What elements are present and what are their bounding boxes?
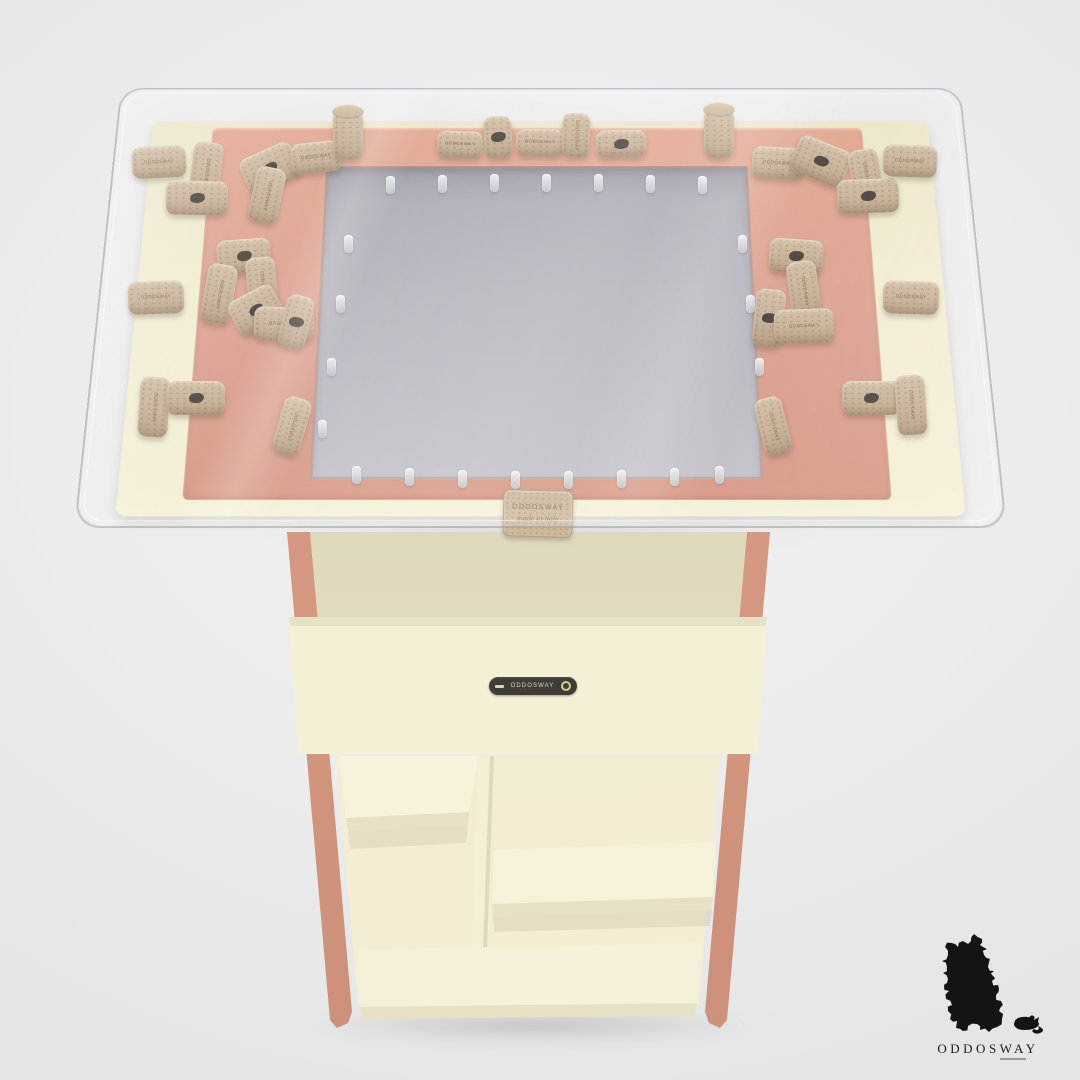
cork-metal-cap	[332, 104, 364, 119]
champagne-cork-standing	[704, 108, 734, 158]
cork-metal-cap	[703, 102, 735, 117]
mouse-icon	[1014, 1015, 1043, 1033]
wine-cork	[166, 180, 229, 215]
gray-felt-panel	[310, 166, 764, 479]
glass-peg	[670, 468, 679, 486]
wine-cork: ODDOSWAY	[131, 145, 187, 180]
wine-cork	[167, 381, 225, 415]
sardinia-stamp-mark	[813, 154, 830, 167]
logo-brand-text: ODDOSWAY	[908, 1041, 1068, 1057]
cork-print-text: ODDOSWAY	[800, 276, 809, 307]
front-cork-tag: ODDOSWAY made in italy	[502, 489, 573, 538]
cork-print-text: ODDOSWAY	[144, 159, 175, 165]
brand-logo: ODDOSWAY	[908, 930, 1068, 1070]
logo-fineprint	[1000, 1058, 1026, 1060]
sardinia-stamp-mark	[490, 131, 507, 144]
sardinia-puzzle-silhouette-icon	[908, 930, 1068, 1040]
wine-cork	[842, 381, 900, 415]
drawer-brand-badge: ODDOSWAY · · ·	[489, 677, 577, 695]
wine-cork	[596, 130, 646, 158]
wine-cork	[483, 115, 513, 158]
glass-peg	[698, 176, 707, 194]
cork-print-text: ODDOSWAY	[908, 390, 915, 421]
tag-made-in-italy-text: made in italy	[517, 513, 559, 523]
wine-cork: ODDOSWAY	[516, 129, 564, 157]
wine-cork: ODDOSWAY	[894, 374, 928, 436]
wine-cork: ODDOSWAY	[561, 113, 591, 158]
glass-peg	[738, 235, 747, 253]
glass-peg	[405, 468, 414, 486]
cork-print-text: ODDOSWAY	[151, 392, 158, 423]
cork-print-text: ODDOSWAY	[767, 411, 779, 442]
cork-print-text: ODDOSWAY	[525, 140, 556, 145]
glass-peg	[344, 235, 353, 253]
wine-cork: ODDOSWAY	[437, 130, 484, 159]
sardinia-stamp-mark	[860, 190, 877, 202]
cork-print-text: ODDOSWAY	[895, 158, 926, 164]
sardinia-stamp-mark	[788, 250, 804, 261]
glass-peg	[438, 175, 447, 193]
wine-cork: ODDOSWAY	[882, 144, 937, 178]
sardinia-stamp-mark	[863, 392, 879, 404]
glass-peg	[336, 295, 345, 313]
badge-fineprint: · · ·	[489, 688, 563, 692]
glass-peg	[511, 471, 520, 489]
glass-peg	[542, 174, 551, 192]
wine-cork: ODDOSWAY	[882, 280, 939, 315]
sardinia-stamp-mark	[613, 137, 629, 149]
cork-print-text: ODDOSWAY	[286, 411, 299, 442]
cork-print-text: ODDOSWAY	[573, 120, 579, 151]
glass-peg	[617, 470, 626, 488]
glass-peg	[352, 466, 361, 484]
glass-peg	[458, 470, 467, 488]
wine-cork: ODDOSWAY	[773, 308, 834, 344]
glass-peg	[564, 471, 573, 489]
cork-print-text: ODDOSWAY	[141, 295, 172, 301]
wine-cork: ODDOSWAY	[127, 280, 184, 315]
glass-peg	[594, 174, 603, 192]
glass-peg	[490, 174, 499, 192]
sardinia-stamp-mark	[288, 316, 304, 328]
glass-peg	[327, 358, 336, 376]
glass-peg	[715, 466, 724, 484]
glass-peg	[318, 420, 327, 438]
champagne-cork-standing	[333, 110, 363, 160]
glass-peg	[755, 358, 764, 376]
wine-cork	[836, 178, 899, 214]
cork-print-text: ODDOSWAY	[763, 160, 794, 166]
glass-peg	[386, 176, 395, 194]
cork-print-text: ODDOSWAY	[262, 180, 273, 211]
tag-brand-text: ODDOSWAY	[512, 503, 564, 511]
cork-print-text: ODDOSWAY	[789, 323, 820, 329]
wine-cork: ODDOSWAY	[137, 376, 171, 438]
cork-print-text: ODDOSWAY	[445, 142, 476, 148]
glass-peg	[646, 175, 655, 193]
cork-print-text: ODDOSWAY	[896, 295, 927, 301]
cork-print-text: ODDOSWAY	[214, 279, 224, 310]
sardinia-stamp-mark	[188, 392, 204, 404]
sardinia-stamp-mark	[189, 192, 205, 204]
cork-print-text: ODDOSWAY	[301, 154, 332, 162]
